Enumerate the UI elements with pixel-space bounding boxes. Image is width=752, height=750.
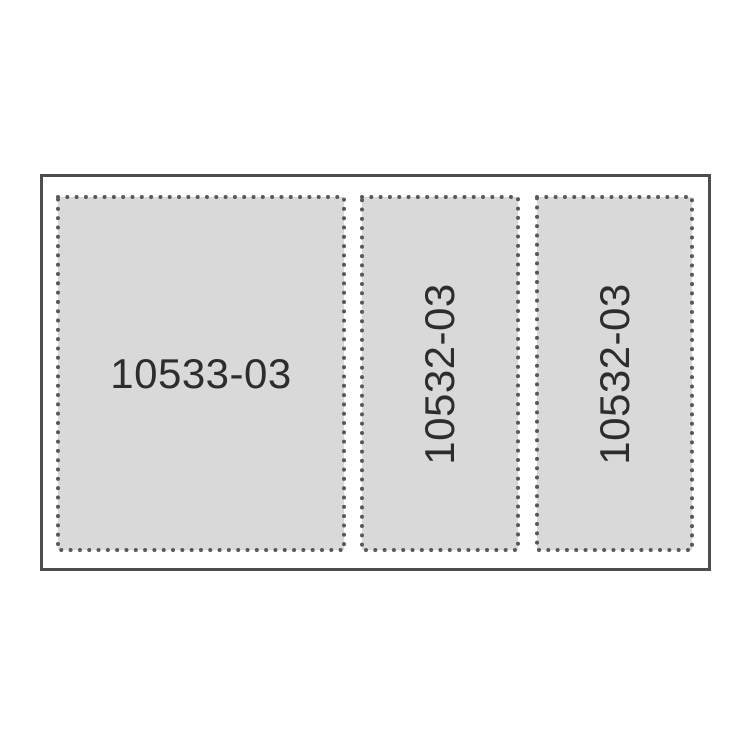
label-text-middle: 10532-03: [419, 283, 461, 465]
label-panel-right: 10532-03: [535, 195, 694, 552]
label-panel-middle: 10532-03: [360, 195, 520, 552]
label-text-large: 10533-03: [110, 353, 292, 395]
label-text-right: 10532-03: [594, 283, 636, 465]
label-panel-large: 10533-03: [56, 195, 346, 552]
label-sheet-diagram: 10533-03 10532-03 10532-03: [0, 0, 752, 750]
